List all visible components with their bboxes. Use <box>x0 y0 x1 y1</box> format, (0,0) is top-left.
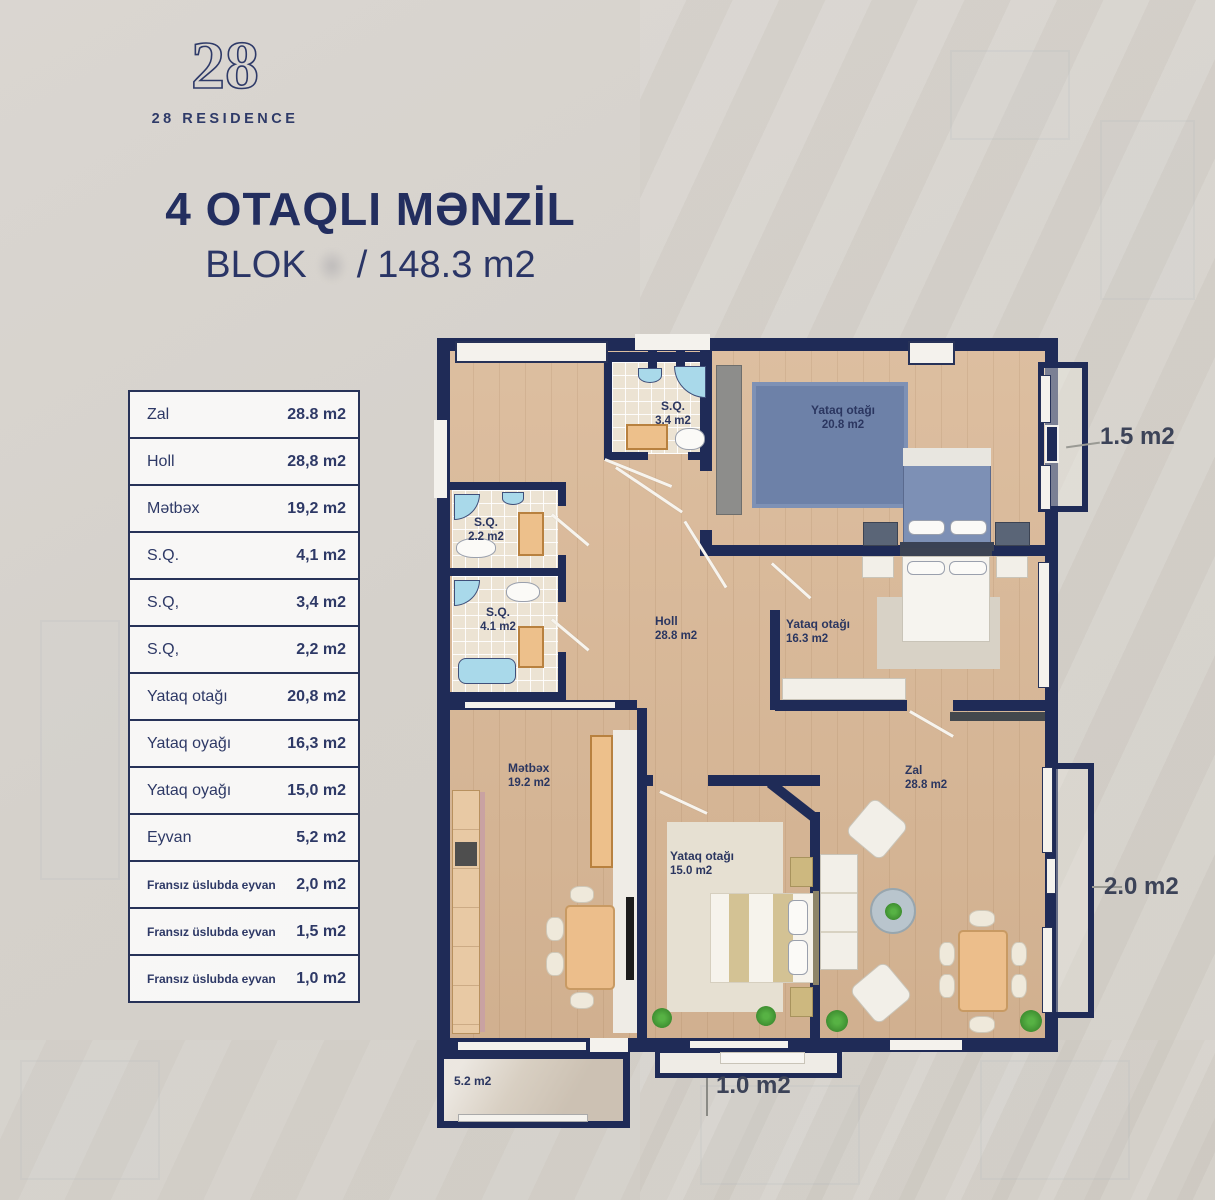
room-label-sq41: S.Q. 4.1 m2 <box>466 604 530 636</box>
erased-blok-letter <box>317 249 347 283</box>
table-row: S.Q,3,4 m2 <box>128 578 360 627</box>
row-value: 28,8 m2 <box>287 453 346 471</box>
nightstand <box>862 556 894 578</box>
room-label-bedroom15: Yataq otağı 15.0 m2 <box>670 848 786 880</box>
subtitle-separator: / <box>357 244 368 287</box>
room-name: S.Q. <box>638 398 708 414</box>
chair <box>969 910 995 927</box>
row-label: Zal <box>147 406 169 424</box>
room-area: 28.8 m2 <box>905 778 995 794</box>
table-row: Eyvan5,2 m2 <box>128 813 360 862</box>
table-row: Mətbəx19,2 m2 <box>128 484 360 533</box>
logo-number: 28 <box>191 27 259 103</box>
room-name: Holl <box>655 613 755 629</box>
stove-icon <box>455 842 477 866</box>
table-row: Yataq otağı20,8 m2 <box>128 672 360 721</box>
window-pane <box>1038 562 1050 688</box>
sink-icon <box>502 492 524 505</box>
table-row: S.Q,2,2 m2 <box>128 625 360 674</box>
nightstand <box>790 857 813 887</box>
nightstand <box>996 556 1028 578</box>
window-pane <box>1040 375 1051 423</box>
chair <box>546 917 564 941</box>
chair <box>570 886 594 903</box>
balcony-shelf <box>720 1052 805 1064</box>
dining-table <box>565 905 615 990</box>
balcony-door-step <box>590 1038 628 1052</box>
toilet-icon <box>675 428 705 450</box>
total-area: 148.3 m2 <box>377 244 535 287</box>
kitchen-wall-unit <box>613 730 637 1033</box>
toilet-icon <box>506 582 540 602</box>
table-row: Holl28,8 m2 <box>128 437 360 486</box>
pillow <box>950 520 987 535</box>
entry-closet <box>455 341 608 363</box>
pillow <box>788 940 808 975</box>
chair <box>1011 942 1027 966</box>
table-row: Fransız üslubda eyvan1,5 m2 <box>128 907 360 956</box>
wall-bedroom16-zal <box>953 700 1045 711</box>
window-mullion <box>1045 425 1059 463</box>
room-name: Zal <box>905 762 995 778</box>
room-area: 3.4 m2 <box>638 414 708 430</box>
row-label: Holl <box>147 453 175 471</box>
plant-icon <box>885 903 902 920</box>
dining-table <box>958 930 1008 1012</box>
balcony-eyvan-label: 5.2 m2 <box>454 1074 491 1088</box>
table-row: S.Q.4,1 m2 <box>128 531 360 580</box>
row-label: S.Q. <box>147 547 179 565</box>
balcony-right-label: 2.0 m2 <box>1104 873 1179 901</box>
room-name: S.Q. <box>466 604 530 620</box>
bedroom20-rug <box>752 382 908 508</box>
plant-icon <box>756 1006 776 1026</box>
title-block: 4 OTAQLI MƏNZİL BLOK / 148.3 m2 <box>118 182 623 287</box>
zal-bottom-window <box>890 1040 962 1050</box>
media-console <box>950 712 1045 721</box>
nightstand <box>863 522 898 546</box>
wardrobe <box>716 365 742 515</box>
room-label-holl: Holl 28.8 m2 <box>655 613 755 645</box>
background-balcony-shape <box>950 50 1070 140</box>
chair <box>546 952 564 976</box>
washing-machine-icon <box>518 512 544 556</box>
counter-edge <box>480 792 485 1032</box>
row-label: S.Q, <box>147 641 179 659</box>
room-label-kitchen: Mətbəx 19.2 m2 <box>508 760 603 792</box>
kitchen-partition-glass <box>465 702 615 708</box>
bed-headboard <box>900 548 992 556</box>
row-value: 16,3 m2 <box>287 735 346 753</box>
balcony-rail <box>458 1114 588 1122</box>
room-label-zal: Zal 28.8 m2 <box>885 762 995 794</box>
row-label: Yataq oyağı <box>147 782 231 800</box>
pillow <box>949 561 987 575</box>
room-label-bedroom16: Yataq otağı 16.3 m2 <box>786 616 901 648</box>
room-name: Mətbəx <box>508 760 603 776</box>
row-value: 5,2 m2 <box>296 829 346 847</box>
row-value: 1,0 m2 <box>296 970 346 988</box>
window-mullion <box>1046 858 1056 894</box>
chair <box>570 992 594 1009</box>
background-window-shape <box>40 620 120 880</box>
wall-kitchen-bedroom15 <box>637 708 647 1038</box>
area-table: Zal28.8 m2 Holl28,8 m2 Mətbəx19,2 m2 S.Q… <box>128 392 360 1003</box>
chair <box>969 1016 995 1033</box>
chair <box>1011 974 1027 998</box>
table-row: Fransız üslubda eyvan2,0 m2 <box>128 860 360 909</box>
wall-bedroom20-bedroom16 <box>700 545 1046 556</box>
wall-sq34 <box>688 452 710 460</box>
wall-sq22 <box>558 482 566 506</box>
nightstand <box>995 522 1030 546</box>
background-balcony-shape <box>1100 120 1195 300</box>
wall-bedroom16-zal <box>775 700 907 711</box>
table-row: Zal28.8 m2 <box>128 390 360 439</box>
wall-bedroom15-top <box>645 775 653 786</box>
pillow <box>788 900 808 935</box>
blok-label: BLOK <box>205 244 306 287</box>
table-row: Yataq oyağı15,0 m2 <box>128 766 360 815</box>
wall-sq34 <box>604 352 612 460</box>
row-value: 4,1 m2 <box>296 547 346 565</box>
window-pane <box>1042 767 1053 853</box>
bed-sheet <box>903 448 991 466</box>
kitchen-balcony-window <box>458 1042 586 1050</box>
room-area: 2.2 m2 <box>456 530 516 546</box>
table-row: Yataq oyağı16,3 m2 <box>128 719 360 768</box>
nightstand <box>790 987 813 1017</box>
brand-logo: 28 28 RESIDENCE <box>135 24 315 127</box>
page-subtitle: BLOK / 148.3 m2 <box>118 244 623 287</box>
wall-holl-bedroom16 <box>770 610 780 710</box>
row-label: S.Q, <box>147 594 179 612</box>
row-value: 2,2 m2 <box>296 641 346 659</box>
page-title: 4 OTAQLI MƏNZİL <box>118 182 623 236</box>
balcony-top-right-label: 1.5 m2 <box>1100 423 1175 451</box>
room-label-bedroom20: Yataq otağı 20.8 m2 <box>773 402 913 434</box>
window-pane <box>1040 465 1051 510</box>
room-label-sq34: S.Q. 3.4 m2 <box>638 398 708 430</box>
row-value: 19,2 m2 <box>287 500 346 518</box>
pillow <box>907 561 945 575</box>
window-pane <box>1042 927 1053 1013</box>
row-value: 20,8 m2 <box>287 688 346 706</box>
row-value: 3,4 m2 <box>296 594 346 612</box>
wall-sq22-sq41 <box>447 568 566 576</box>
room-name: S.Q. <box>456 514 516 530</box>
background-window-shape <box>20 1060 160 1180</box>
logo-name: 28 RESIDENCE <box>135 111 315 127</box>
kitchen-counter <box>452 790 480 1034</box>
room-name: Yataq otağı <box>786 616 901 632</box>
left-wall-niche <box>434 420 447 498</box>
wall-sq22 <box>447 482 566 490</box>
sofa <box>820 854 858 970</box>
room-name: Yataq otağı <box>670 848 786 864</box>
leader-line <box>706 1078 708 1116</box>
room-area: 28.8 m2 <box>655 629 755 645</box>
kitchen-cabinet <box>590 735 613 868</box>
plant-icon <box>1020 1010 1042 1032</box>
row-label: Fransız üslubda eyvan <box>147 878 276 892</box>
row-value: 1,5 m2 <box>296 923 346 941</box>
row-value: 15,0 m2 <box>287 782 346 800</box>
dresser <box>782 678 906 700</box>
balcony-bottom-label: 1.0 m2 <box>716 1072 791 1100</box>
row-value: 2,0 m2 <box>296 876 346 894</box>
table-row: Fransız üslubda eyvan1,0 m2 <box>128 954 360 1003</box>
row-label: Yataq oyağı <box>147 735 231 753</box>
row-label: Eyvan <box>147 829 191 847</box>
wall-sq34 <box>612 352 710 362</box>
bathtub-icon <box>458 658 516 684</box>
bed-headboard <box>813 891 819 985</box>
entrance-opening <box>635 334 710 350</box>
sink-icon <box>638 368 662 383</box>
tv-icon <box>626 897 634 980</box>
chair <box>939 974 955 998</box>
room-area: 20.8 m2 <box>773 418 913 434</box>
row-label: Mətbəx <box>147 500 199 518</box>
wall-sq41 <box>558 576 566 602</box>
room-name: Yataq otağı <box>773 402 913 418</box>
poster-page: 28 28 RESIDENCE 4 OTAQLI MƏNZİL BLOK / 1… <box>0 0 1215 1200</box>
chair <box>939 942 955 966</box>
room-area: 15.0 m2 <box>670 864 786 880</box>
logo-28-outline: 28 <box>150 24 300 104</box>
room-area: 4.1 m2 <box>466 620 530 636</box>
room-area: 16.3 m2 <box>786 632 901 648</box>
row-label: Fransız üslubda eyvan <box>147 925 276 939</box>
room-label-sq22: S.Q. 2.2 m2 <box>456 514 516 546</box>
row-label: Yataq otağı <box>147 688 228 706</box>
pillow <box>908 520 945 535</box>
plant-icon <box>652 1008 672 1028</box>
room-area: 19.2 m2 <box>508 776 603 792</box>
wall-bedroom15-top <box>708 775 820 786</box>
plant-icon <box>826 1010 848 1032</box>
wall-sq41 <box>447 692 566 700</box>
french-balcony-right <box>1050 763 1094 1018</box>
row-label: Fransız üslubda eyvan <box>147 972 276 986</box>
floor-plan: 5.2 m2 1.0 m2 1.5 m2 2.0 m2 S.Q. 3.4 m2 … <box>430 330 1215 1150</box>
row-value: 28.8 m2 <box>287 406 346 424</box>
wall-sq34 <box>604 452 648 460</box>
bedroom20-top-cabinet <box>908 341 955 365</box>
